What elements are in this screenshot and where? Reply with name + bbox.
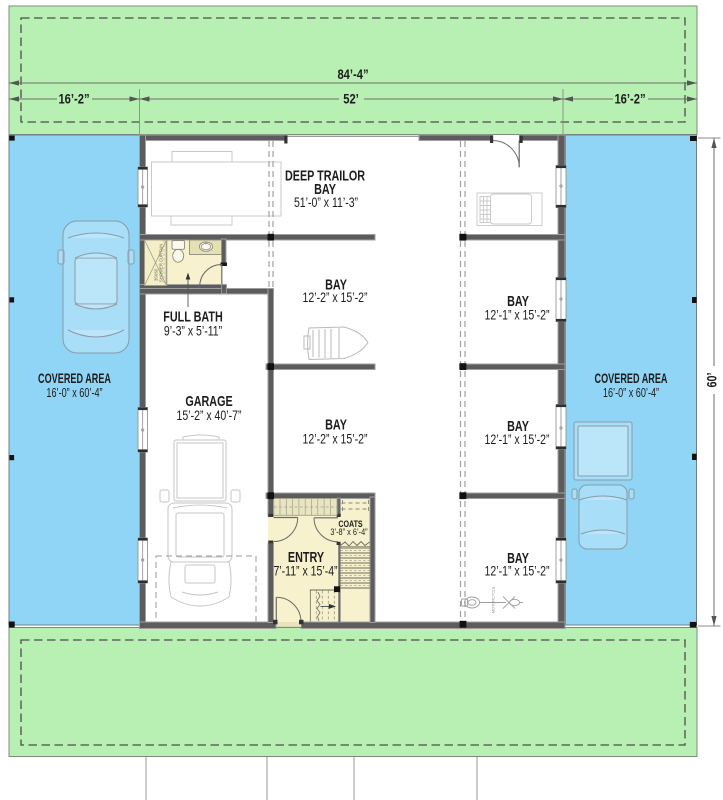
svg-text:84’-4”: 84’-4”	[337, 67, 368, 82]
svg-text:60’: 60’	[704, 372, 719, 387]
svg-text:51’-0” x 11’-3”: 51’-0” x 11’-3”	[294, 195, 358, 211]
svg-text:MOTORCYCLE: MOTORCYCLE	[492, 586, 496, 613]
svg-text:16’-2”: 16’-2”	[58, 91, 89, 106]
svg-text:12’-2” x 15’-2”: 12’-2” x 15’-2”	[303, 290, 368, 306]
svg-text:9’-3” x 5’-11”: 9’-3” x 5’-11”	[164, 323, 222, 339]
svg-text:BAY: BAY	[325, 416, 347, 433]
svg-text:COVERED AREA: COVERED AREA	[38, 370, 111, 387]
svg-text:16’-2”: 16’-2”	[614, 91, 645, 106]
svg-text:16’-0” x 60’-4”: 16’-0” x 60’-4”	[46, 387, 102, 401]
svg-text:12’-1” x 15’-2”: 12’-1” x 15’-2”	[485, 307, 550, 323]
svg-text:3’-8” x 6’-4”: 3’-8” x 6’-4”	[330, 527, 368, 537]
svg-text:52’: 52’	[343, 91, 359, 106]
svg-text:12’-2” x 15’-2”: 12’-2” x 15’-2”	[303, 431, 368, 447]
svg-text:12’-1” x 15’-2”: 12’-1” x 15’-2”	[485, 563, 550, 579]
svg-text:15’-2” x 40’-7”: 15’-2” x 40’-7”	[177, 408, 242, 424]
svg-text:SHOWER CURTAIN: SHOWER CURTAIN	[159, 244, 164, 282]
svg-text:16’-0” x 60’-4”: 16’-0” x 60’-4”	[603, 387, 659, 401]
svg-text:COVERED AREA: COVERED AREA	[595, 370, 668, 387]
svg-text:12’-1” x 15’-2”: 12’-1” x 15’-2”	[485, 432, 550, 448]
svg-text:7’-11” x 15’-4”: 7’-11” x 15’-4”	[273, 563, 337, 579]
